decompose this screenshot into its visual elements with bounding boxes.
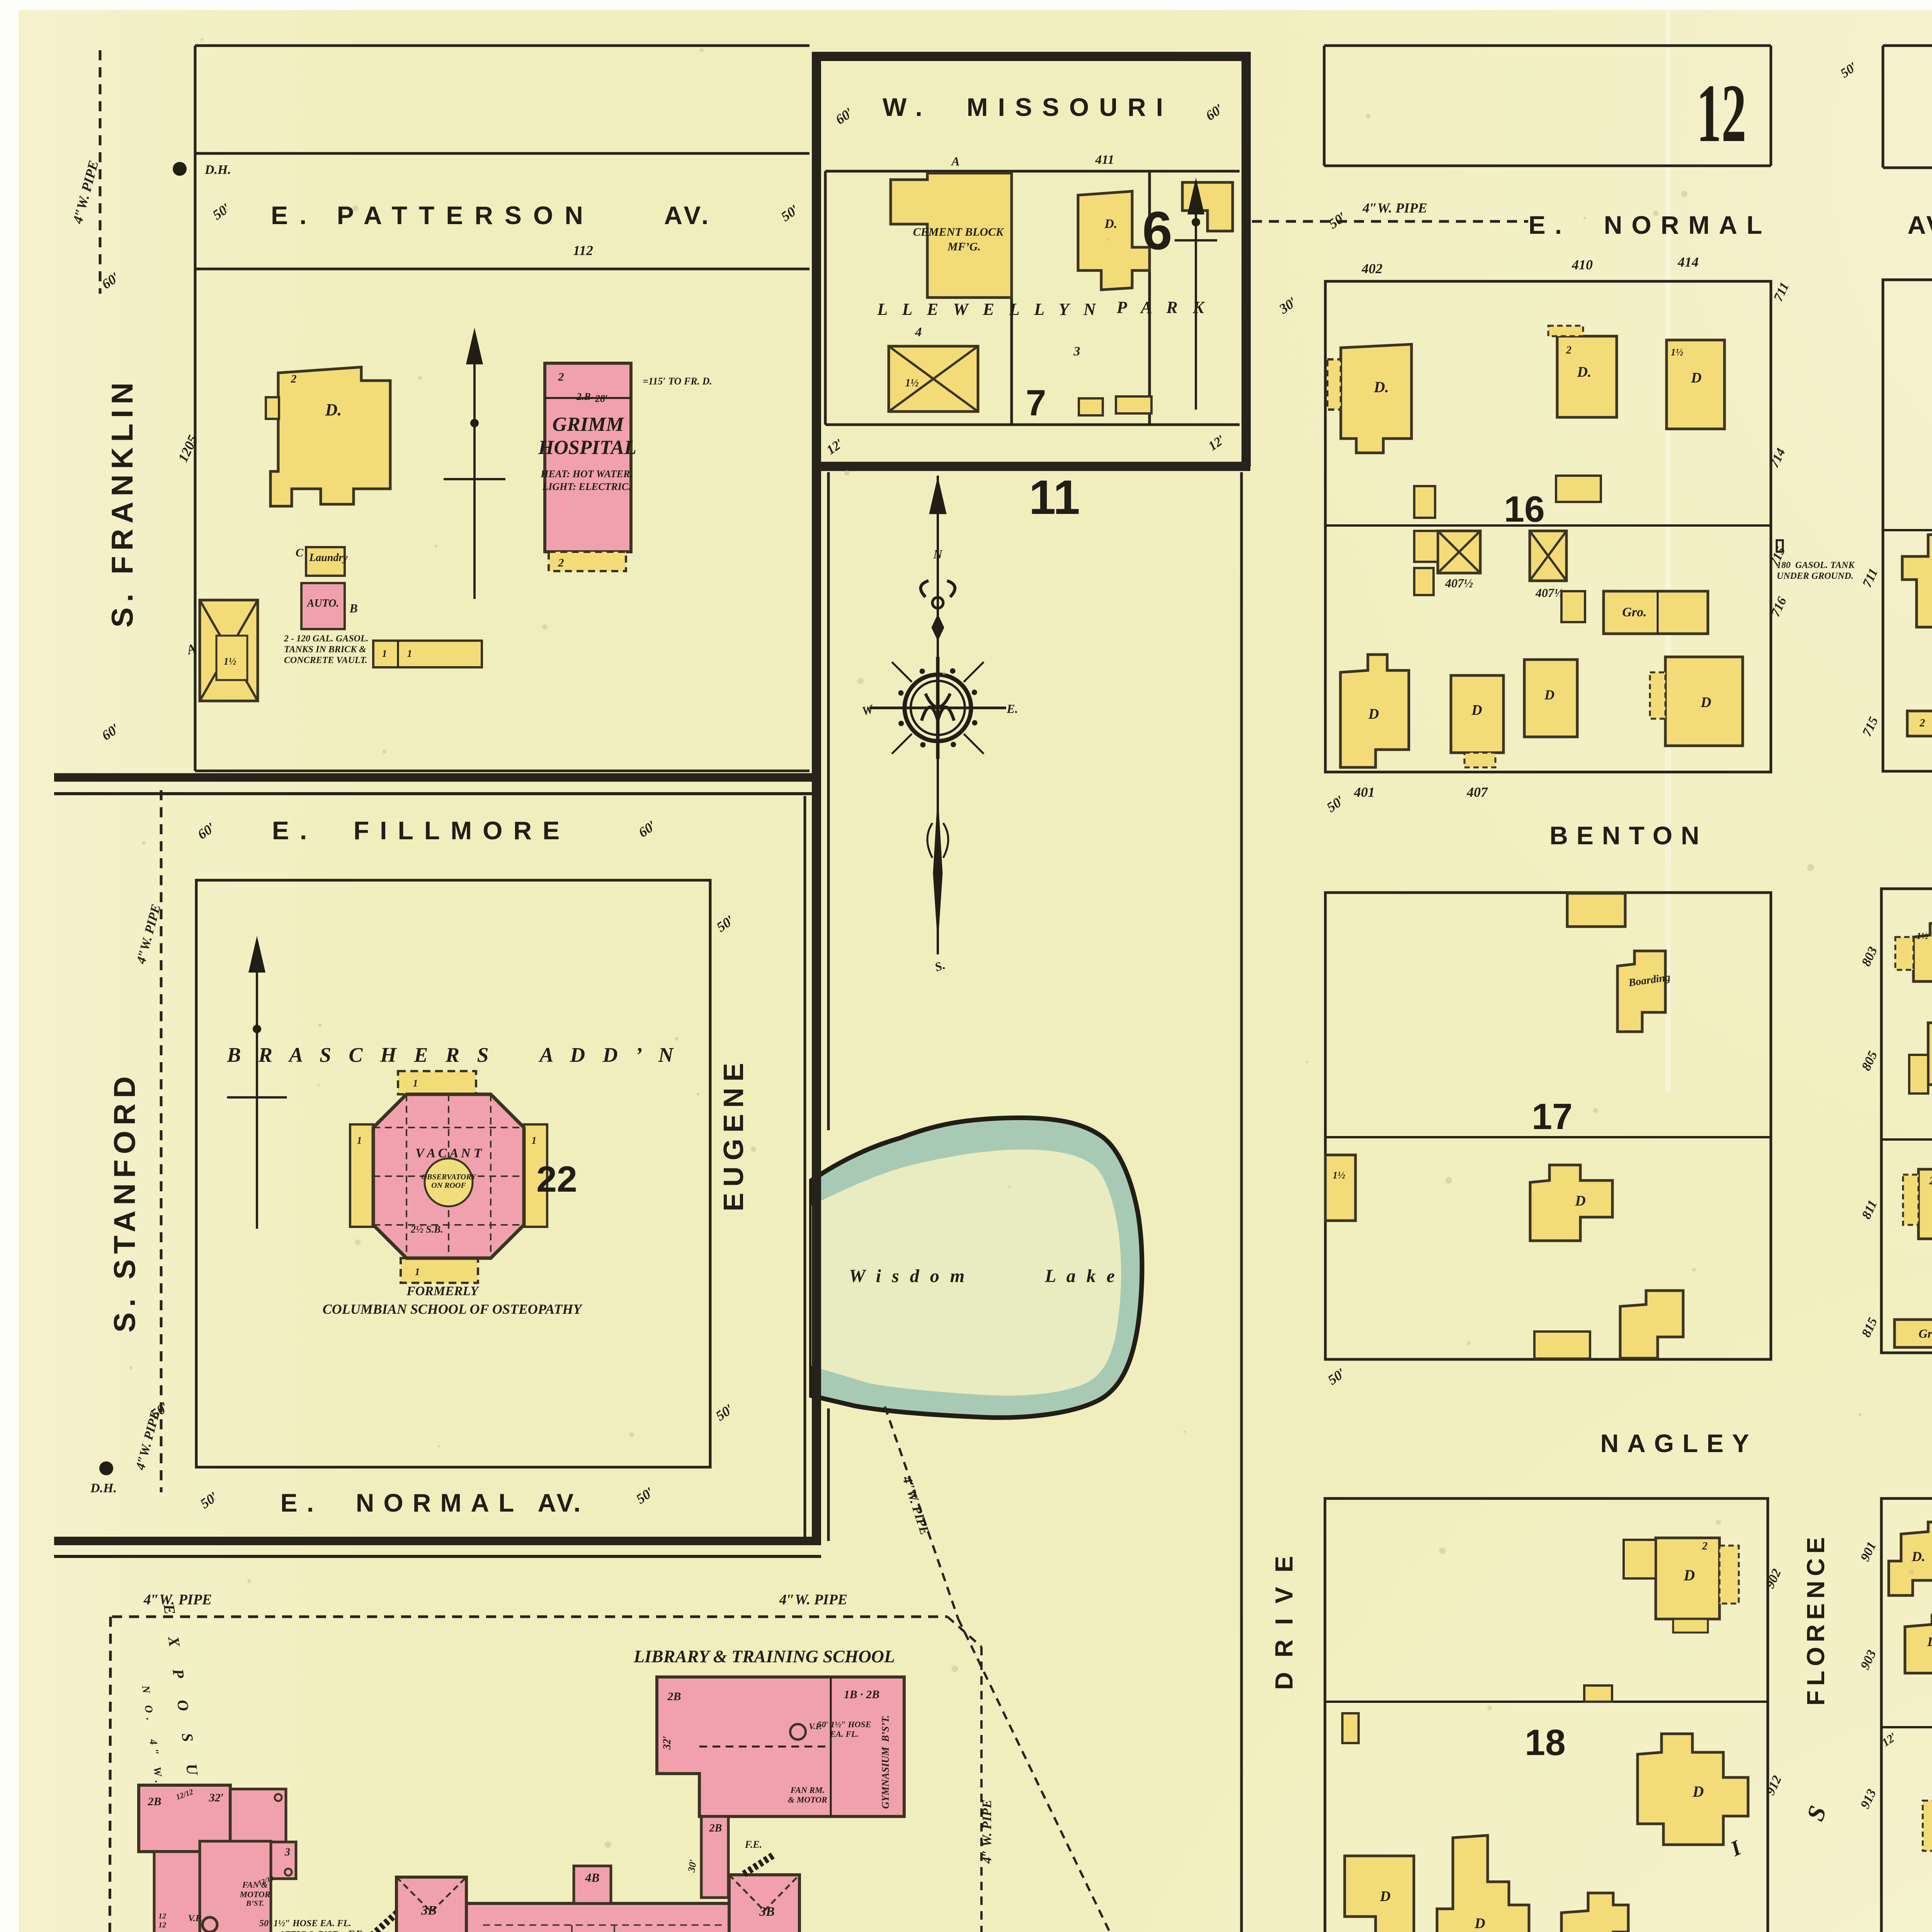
svg-text:2: 2 bbox=[291, 372, 297, 385]
svg-text:D: D bbox=[1544, 687, 1554, 702]
svg-text:1½: 1½ bbox=[1333, 1170, 1345, 1181]
svg-text:D.: D. bbox=[1912, 1549, 1925, 1564]
svg-text:ON ROOF: ON ROOF bbox=[431, 1181, 466, 1190]
svg-text:EA. FL.: EA. FL. bbox=[830, 1729, 859, 1739]
svg-text:2B: 2B bbox=[667, 1690, 681, 1703]
svg-text:AUTO.: AUTO. bbox=[306, 597, 339, 609]
svg-text:2B: 2B bbox=[147, 1795, 161, 1808]
svg-text:30′: 30′ bbox=[685, 1859, 699, 1874]
svg-text:1: 1 bbox=[415, 1266, 420, 1277]
svg-text:D.: D. bbox=[325, 400, 342, 419]
svg-text:V A C A N T: V A C A N T bbox=[415, 1146, 482, 1160]
svg-text:MF’G.: MF’G. bbox=[947, 240, 981, 253]
svg-text:FLORENCE: FLORENCE bbox=[1802, 1532, 1830, 1706]
svg-text:E. FILLMORE: E. FILLMORE bbox=[272, 816, 570, 845]
svg-text:1B · 2B: 1B · 2B bbox=[844, 1688, 880, 1701]
svg-text:2: 2 bbox=[1919, 717, 1925, 729]
svg-text:EUGENE: EUGENE bbox=[718, 1057, 749, 1211]
svg-text:B R A S C H E R S A D D ’ N: B R A S C H E R S A D D ’ N bbox=[226, 1043, 679, 1066]
svg-text:D: D bbox=[1379, 1888, 1390, 1905]
svg-text:D: D bbox=[1690, 370, 1701, 386]
svg-text:12: 12 bbox=[158, 1921, 166, 1929]
svg-text:D.H.: D.H. bbox=[90, 1481, 117, 1495]
svg-text:1: 1 bbox=[532, 1135, 537, 1146]
svg-text:AV.: AV. bbox=[664, 201, 711, 230]
svg-text:18: 18 bbox=[1525, 1722, 1566, 1763]
svg-text:CEMENT BLOCK: CEMENT BLOCK bbox=[913, 226, 1004, 238]
svg-text:NAGLEY: NAGLEY bbox=[1600, 1429, 1757, 1458]
svg-text:B’ST.: B’ST. bbox=[246, 1899, 264, 1908]
svg-text:FORMERLY: FORMERLY bbox=[406, 1284, 480, 1298]
svg-text:HOSPITAL: HOSPITAL bbox=[538, 437, 636, 459]
svg-text:2.B: 2.B bbox=[576, 391, 591, 402]
svg-text:C: C bbox=[296, 546, 304, 559]
svg-text:1: 1 bbox=[413, 1078, 418, 1089]
svg-text:E. NORMAL: E. NORMAL bbox=[1529, 211, 1772, 239]
svg-text:D: D bbox=[1927, 1635, 1932, 1649]
svg-text:ATTIC & B’ST.: ATTIC & B’ST. bbox=[278, 1930, 339, 1932]
svg-text:GRIMM: GRIMM bbox=[553, 413, 625, 435]
svg-text:1½: 1½ bbox=[905, 377, 919, 389]
svg-text:1½: 1½ bbox=[1671, 347, 1684, 358]
svg-text:2½ S.B.: 2½ S.B. bbox=[410, 1224, 443, 1235]
svg-text:7: 7 bbox=[1026, 383, 1046, 423]
svg-text:D: D bbox=[1575, 1193, 1585, 1209]
svg-text:V.P.: V.P. bbox=[188, 1913, 202, 1923]
svg-text:UNDER GROUND.: UNDER GROUND. bbox=[1777, 571, 1854, 581]
svg-text:1: 1 bbox=[357, 1135, 362, 1146]
svg-text:D.: D. bbox=[1104, 217, 1117, 231]
svg-text:N: N bbox=[933, 547, 943, 561]
svg-text:50′ 1½″ HOSE: 50′ 1½″ HOSE bbox=[818, 1719, 871, 1729]
svg-text:16: 16 bbox=[1504, 489, 1545, 530]
svg-text:2: 2 bbox=[1929, 1175, 1932, 1187]
svg-text:A: A bbox=[951, 154, 959, 168]
svg-text:GYMNASIUM B’S’T.: GYMNASIUM B’S’T. bbox=[880, 1715, 891, 1809]
svg-text:D: D bbox=[1368, 706, 1379, 722]
svg-text:MOTOR: MOTOR bbox=[239, 1889, 270, 1899]
svg-text:D: D bbox=[1474, 1915, 1485, 1932]
svg-text:1½: 1½ bbox=[1917, 931, 1928, 941]
svg-text:Gro.: Gro. bbox=[1918, 1327, 1932, 1340]
svg-text:S. FRANKLIN: S. FRANKLIN bbox=[105, 377, 139, 628]
svg-text:D: D bbox=[1471, 702, 1482, 718]
svg-text:3: 3 bbox=[284, 1846, 290, 1858]
svg-text:112: 112 bbox=[573, 243, 593, 258]
svg-text:2B = 3B: 2B = 3B bbox=[517, 1930, 557, 1932]
svg-text:3B: 3B bbox=[421, 1903, 437, 1918]
svg-text:17: 17 bbox=[1532, 1096, 1573, 1137]
svg-text:407⅓: 407⅓ bbox=[1535, 586, 1563, 600]
svg-text:HEAT: HOT WATER.: HEAT: HOT WATER. bbox=[540, 468, 633, 480]
svg-text:11: 11 bbox=[1029, 471, 1080, 524]
svg-text:411: 411 bbox=[1095, 153, 1114, 167]
svg-text:6: 6 bbox=[1142, 200, 1172, 261]
svg-text:W i s d o m L a k e: W i s d o m L a k e bbox=[849, 1266, 1118, 1286]
svg-text:22: 22 bbox=[536, 1159, 577, 1200]
svg-text:E.: E. bbox=[1006, 702, 1018, 716]
svg-text:LIGHT: ELECTRIC.: LIGHT: ELECTRIC. bbox=[542, 481, 631, 492]
svg-text:D: D bbox=[1700, 694, 1711, 711]
svg-text:E. NORMAL: E. NORMAL bbox=[281, 1488, 524, 1517]
svg-text:32′: 32′ bbox=[661, 1736, 673, 1750]
svg-text:D R I V E: D R I V E bbox=[1270, 1552, 1298, 1690]
svg-text:2 - 120 GAL. GASOL.: 2 - 120 GAL. GASOL. bbox=[284, 634, 369, 644]
svg-text:401: 401 bbox=[1354, 784, 1375, 800]
svg-text:407: 407 bbox=[1466, 784, 1488, 800]
svg-text:Laundry: Laundry bbox=[309, 552, 348, 564]
svg-text:D: D bbox=[1684, 1566, 1695, 1584]
svg-text:OBSERVATORY: OBSERVATORY bbox=[422, 1173, 477, 1181]
svg-text:4″W. PIPE: 4″W. PIPE bbox=[1362, 200, 1427, 216]
svg-text:L L E W E L L Y N: L L E W E L L Y N bbox=[877, 300, 1101, 319]
svg-text:COLUMBIAN SCHOOL OF OSTEOPATHY: COLUMBIAN SCHOOL OF OSTEOPATHY bbox=[323, 1301, 583, 1317]
svg-text:2: 2 bbox=[558, 556, 564, 569]
svg-text:B: B bbox=[349, 601, 357, 615]
svg-text:4″W. PIPE: 4″W. PIPE bbox=[779, 1592, 848, 1608]
svg-text:Gro.: Gro. bbox=[1622, 605, 1646, 619]
svg-text:4″ W. PIPE: 4″ W. PIPE bbox=[980, 1799, 994, 1864]
svg-text:12: 12 bbox=[158, 1912, 166, 1920]
svg-text:402: 402 bbox=[1361, 261, 1383, 276]
svg-text:4B: 4B bbox=[585, 1871, 599, 1884]
svg-text:D.: D. bbox=[1374, 378, 1389, 396]
svg-text:AV.: AV. bbox=[1907, 211, 1932, 239]
svg-text:TANKS IN BRICK &: TANKS IN BRICK & bbox=[284, 645, 366, 655]
svg-text:410: 410 bbox=[1571, 257, 1593, 272]
svg-text:50′ 1½″ HOSE EA. FL.: 50′ 1½″ HOSE EA. FL. bbox=[259, 1918, 351, 1929]
svg-text:CONCRETE VAULT.: CONCRETE VAULT. bbox=[284, 655, 367, 665]
svg-text:2: 2 bbox=[1566, 344, 1571, 356]
svg-text:D: D bbox=[1692, 1783, 1704, 1800]
svg-text:4: 4 bbox=[915, 325, 922, 339]
svg-text:1: 1 bbox=[407, 648, 412, 659]
svg-text:12: 12 bbox=[1697, 68, 1747, 160]
svg-text:S. STANFORD: S. STANFORD bbox=[107, 1071, 141, 1333]
svg-text:BENTON: BENTON bbox=[1549, 821, 1708, 850]
svg-text:F.E.: F.E. bbox=[745, 1839, 762, 1850]
svg-text:407½: 407½ bbox=[1445, 576, 1473, 590]
svg-text:3B: 3B bbox=[759, 1905, 775, 1919]
svg-text:2: 2 bbox=[558, 371, 564, 383]
svg-text:AV.: AV. bbox=[537, 1488, 583, 1517]
svg-text:28′: 28′ bbox=[595, 393, 608, 404]
svg-text:2B: 2B bbox=[709, 1822, 722, 1834]
svg-text:LIBRARY & TRAINING SCHOOL: LIBRARY & TRAINING SCHOOL bbox=[633, 1646, 895, 1666]
svg-text:32′: 32′ bbox=[209, 1791, 224, 1804]
svg-text:FAN RM.: FAN RM. bbox=[790, 1785, 825, 1795]
svg-text:2: 2 bbox=[1702, 1540, 1708, 1552]
svg-text:F.E.: F.E. bbox=[347, 1929, 365, 1932]
svg-text:W. MISSOURI: W. MISSOURI bbox=[883, 93, 1173, 121]
svg-text:& MOTOR: & MOTOR bbox=[788, 1795, 827, 1804]
svg-text:1½: 1½ bbox=[224, 656, 236, 667]
svg-text:414: 414 bbox=[1677, 254, 1699, 270]
svg-text:180 GASOL. TANK: 180 GASOL. TANK bbox=[1777, 560, 1855, 570]
svg-text:D.H.: D.H. bbox=[204, 163, 231, 177]
svg-text:D.: D. bbox=[1577, 364, 1592, 380]
svg-text:=115′ TO FR. D.: =115′ TO FR. D. bbox=[643, 376, 712, 387]
svg-text:E. PATTERSON: E. PATTERSON bbox=[271, 201, 595, 230]
svg-text:3: 3 bbox=[1073, 344, 1080, 359]
svg-text:1: 1 bbox=[382, 648, 387, 659]
